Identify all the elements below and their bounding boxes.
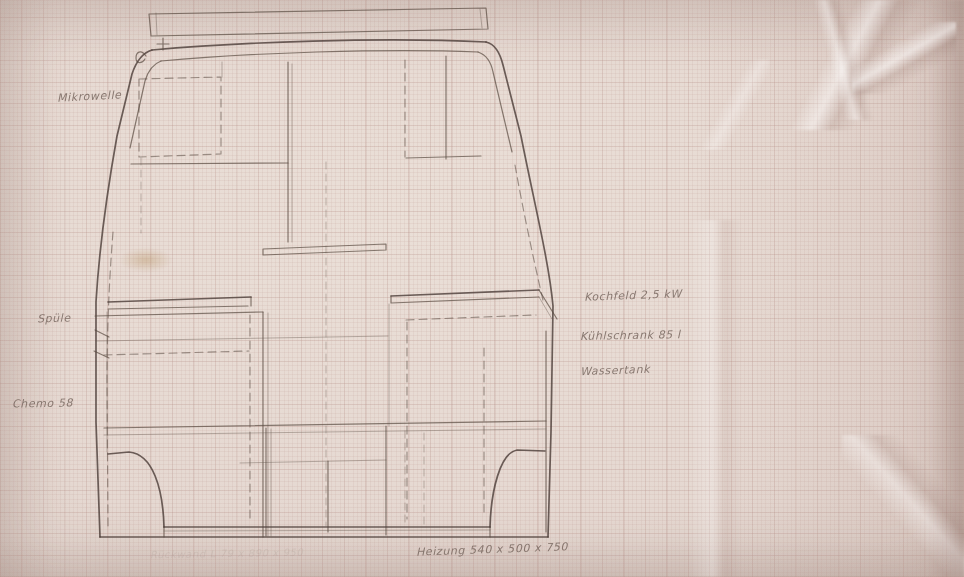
roof-rack [149,8,488,36]
van-sketch [0,0,964,577]
label-kuehlschrank: Kühlschrank 85 l [580,328,681,343]
left-counter [94,297,388,537]
right-counter [389,290,557,532]
cabinet-upper-left [131,62,292,242]
center-shelf [263,244,386,255]
label-spuele: Spüle [37,311,71,325]
wheel-arch-right [490,450,545,537]
lower-dividers [266,426,424,536]
microwave-box-dashed [139,77,221,233]
van-body-outline [96,38,553,537]
wheel-arch-left [108,452,164,537]
floor-line [164,527,490,531]
cabinet-upper-right [405,56,481,159]
label-wassertank: Wassertank [580,363,650,378]
bench-lines [104,421,546,463]
label-chemo: Chemo 58 [12,396,73,410]
photographed-sketch: Mikrowelle Spüle Chemo 58 Kochfeld 2,5 k… [0,0,964,577]
